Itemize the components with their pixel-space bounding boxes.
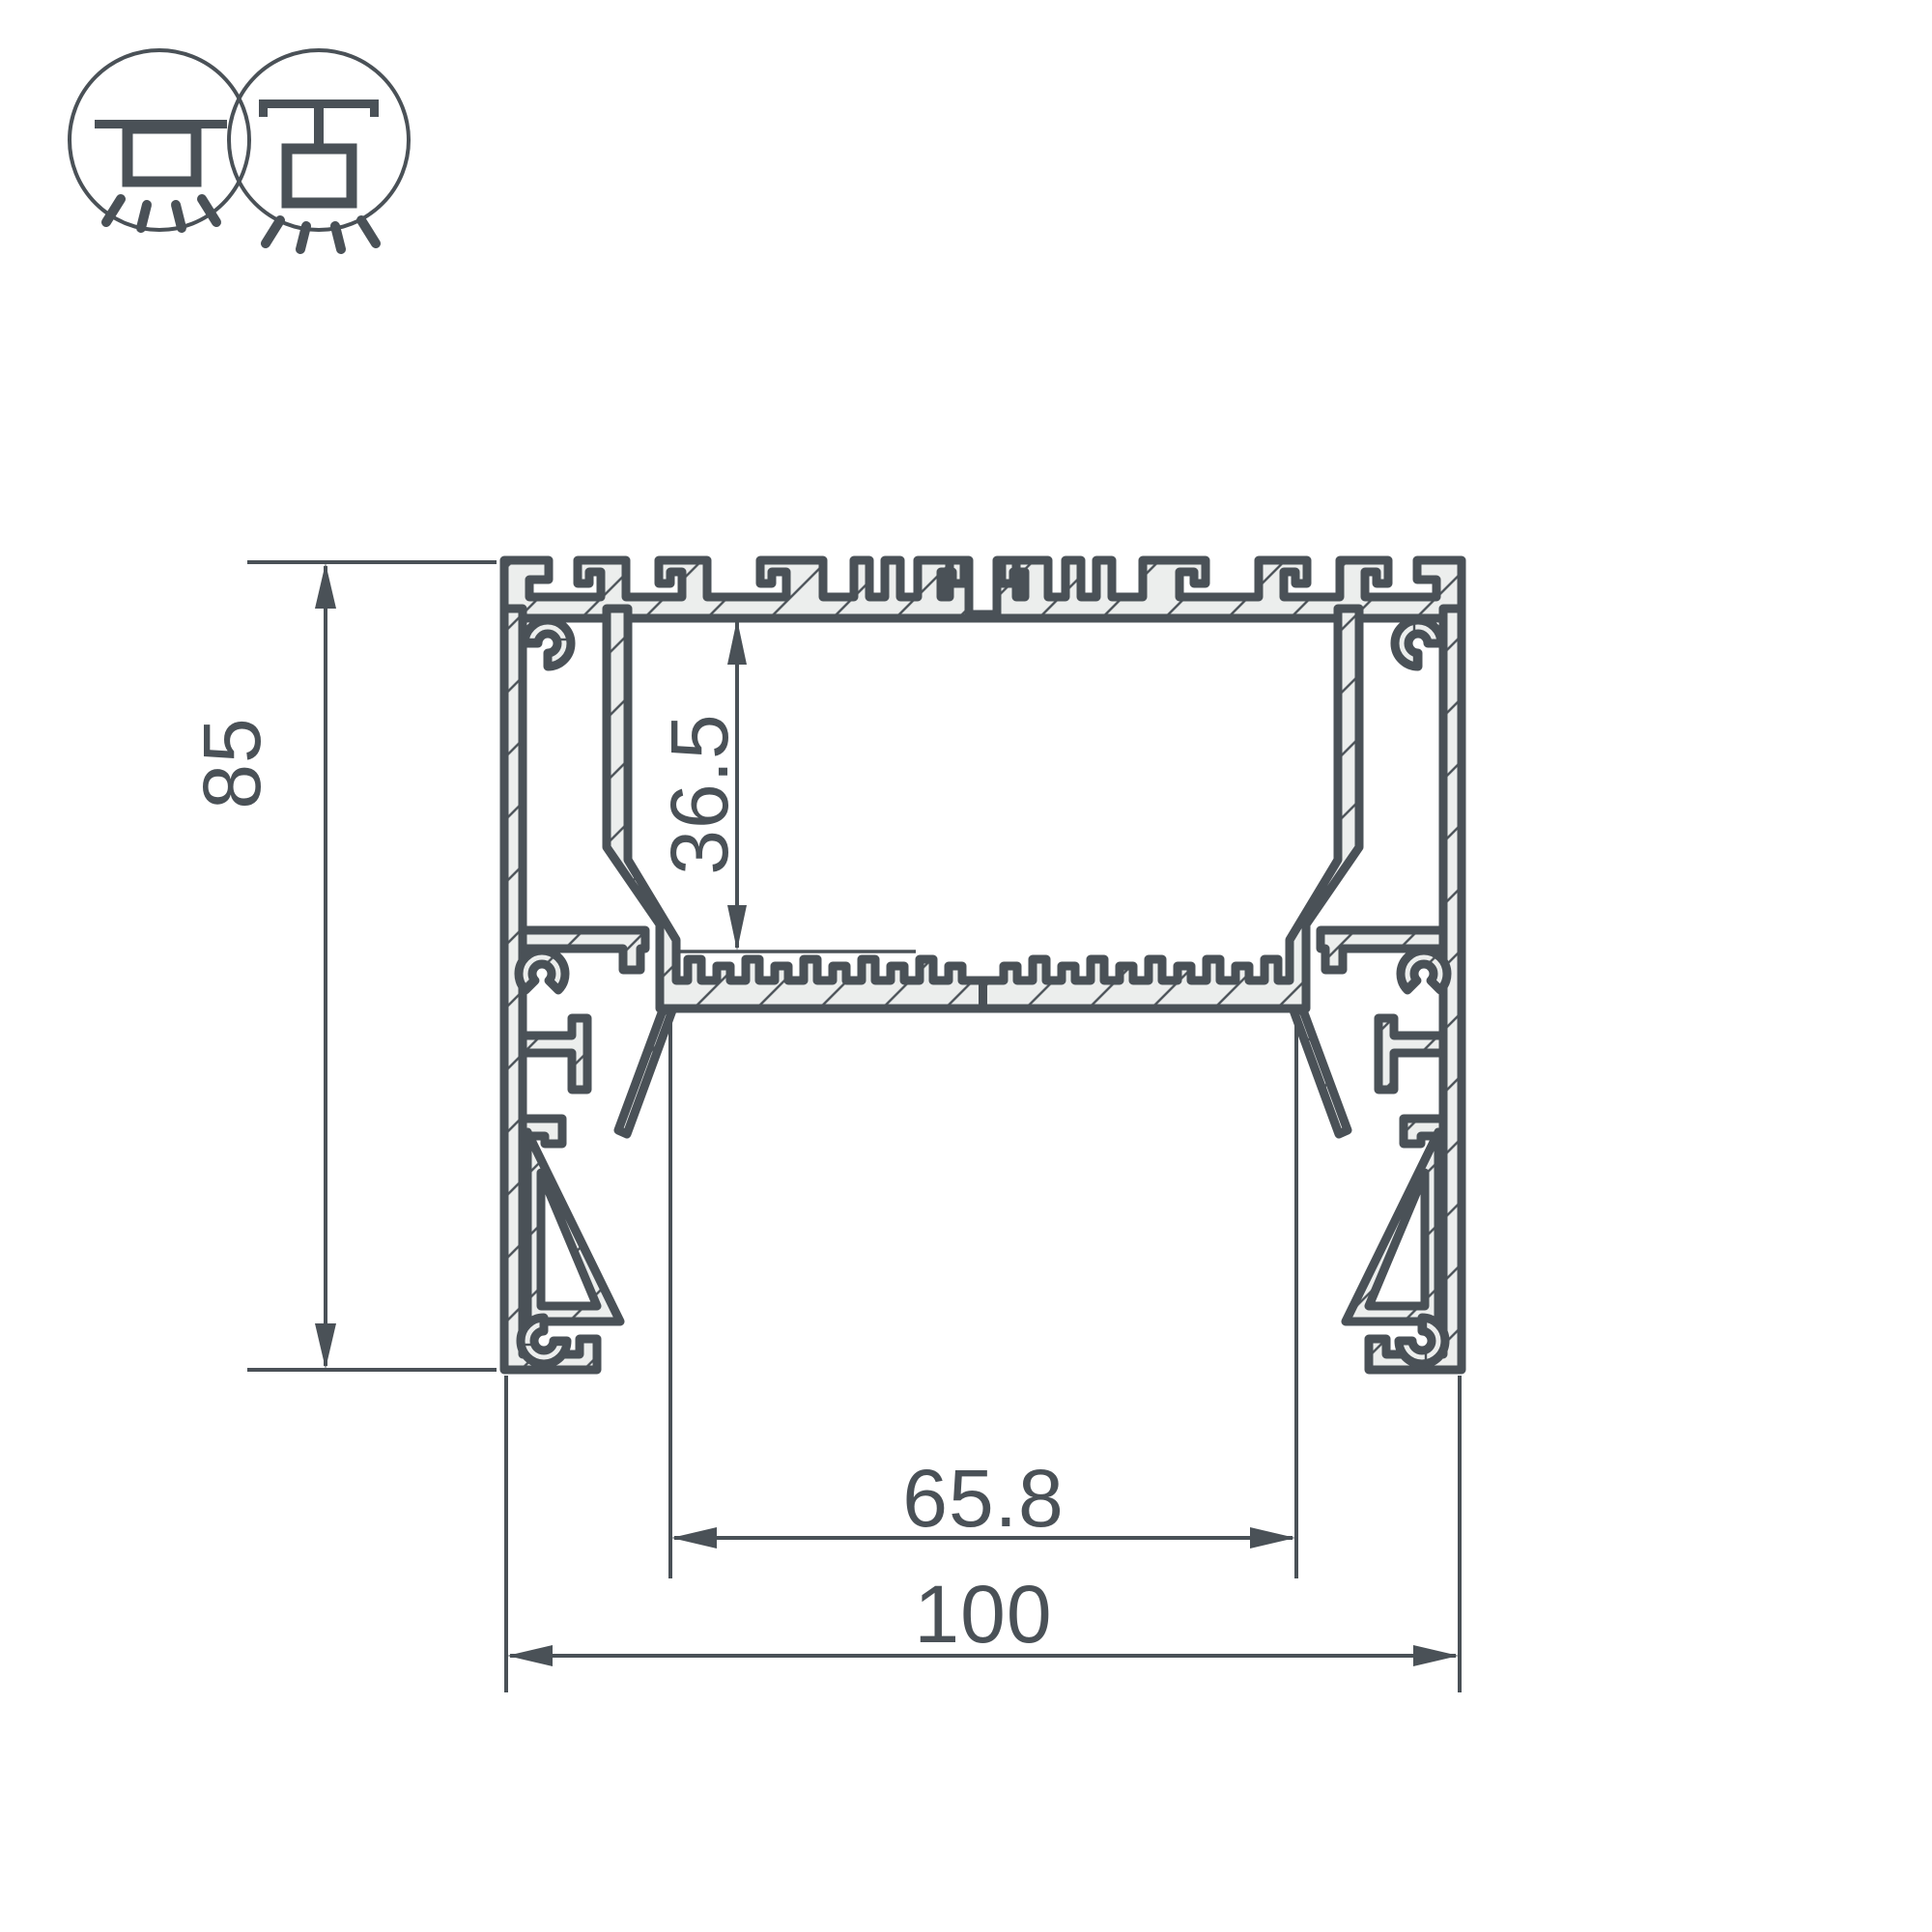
ceiling-tick xyxy=(259,108,268,117)
arrowhead-down xyxy=(315,1323,336,1369)
dimension-100-label: 100 xyxy=(914,1569,1052,1660)
ceiling-line xyxy=(259,99,379,108)
light-ray xyxy=(266,220,280,243)
arrowhead-down xyxy=(727,905,747,951)
dimension-36-5-label: 36.5 xyxy=(654,713,745,875)
suspension-stem xyxy=(314,108,324,149)
profile-right-half xyxy=(983,560,1463,1374)
arrowhead-right xyxy=(1413,1645,1459,1666)
light-ray xyxy=(176,205,182,228)
light-ray xyxy=(141,205,147,228)
arrowhead-left xyxy=(507,1645,553,1666)
dimension-inner-width: 65.8 xyxy=(670,1016,1296,1578)
icon-circle xyxy=(70,50,249,230)
profile-left-half xyxy=(504,560,983,1374)
arrowhead-up xyxy=(727,619,747,665)
light-ray xyxy=(300,226,306,249)
profile-cross-section-drawing: 85 36.5 65.8 100 xyxy=(0,0,1932,1932)
light-ray xyxy=(335,226,341,249)
arrowhead-left xyxy=(671,1527,717,1548)
arrowhead-right xyxy=(1250,1527,1295,1548)
drawing-canvas: 85 36.5 65.8 100 xyxy=(0,0,1932,1932)
luminaire-box xyxy=(287,149,352,203)
ceiling-tick xyxy=(370,108,379,117)
luminaire-box xyxy=(128,128,196,182)
light-ray xyxy=(361,220,376,243)
mount-icon-pendant xyxy=(229,50,409,249)
dimension-overall-height: 85 xyxy=(186,562,497,1370)
dimension-65-8-label: 65.8 xyxy=(902,1453,1065,1544)
dimension-inner-depth: 36.5 xyxy=(654,619,916,952)
dimension-85-label: 85 xyxy=(186,717,277,809)
arrowhead-up xyxy=(315,563,336,609)
mount-icon-surface xyxy=(70,50,249,230)
